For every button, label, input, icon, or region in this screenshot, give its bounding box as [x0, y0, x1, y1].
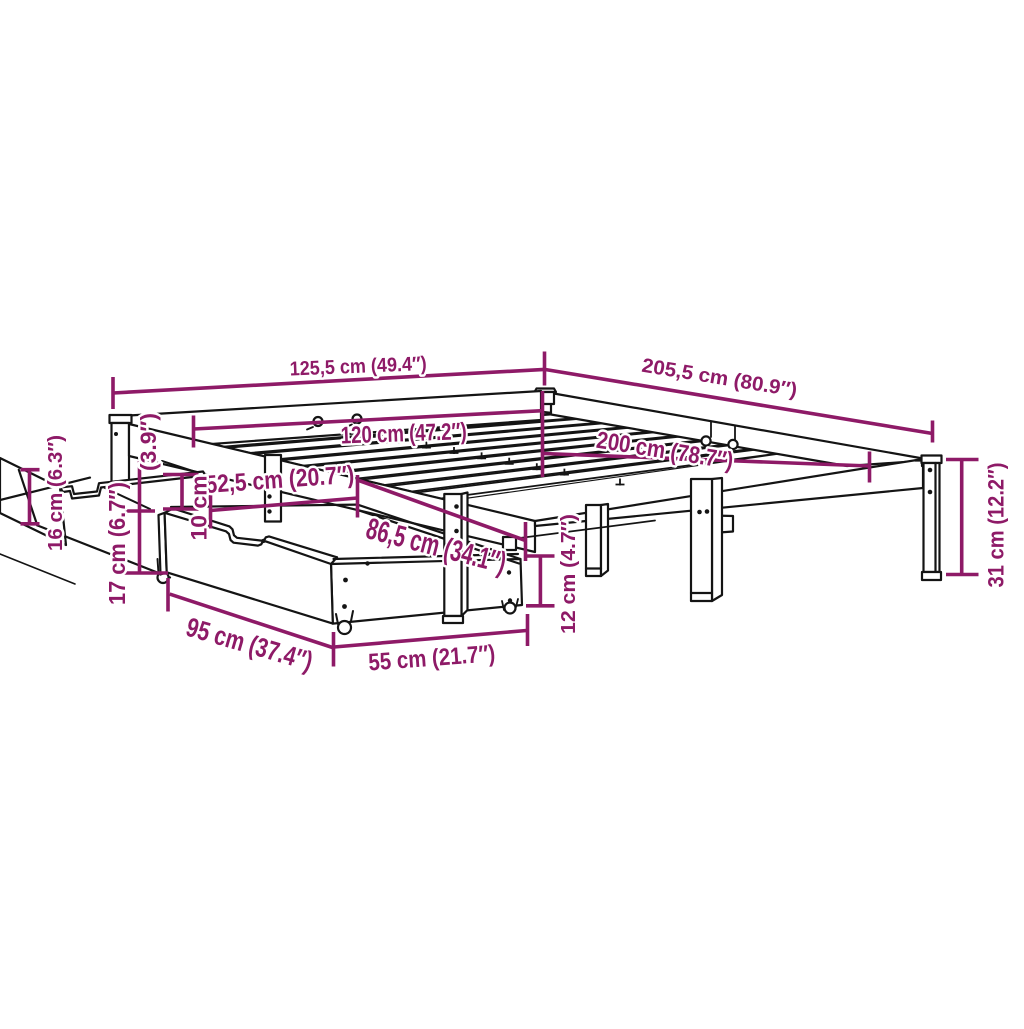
svg-text:16 cm (6.3″): 16 cm (6.3″) [45, 435, 67, 551]
svg-text:205,5 cm (80.9″): 205,5 cm (80.9″) [640, 355, 798, 402]
svg-text:120 cm (47.2″): 120 cm (47.2″) [340, 418, 467, 449]
svg-text:55 cm (21.7″): 55 cm (21.7″) [367, 640, 496, 676]
svg-text:17 cm (6.7″): 17 cm (6.7″) [104, 482, 130, 605]
svg-text:10 cm: 10 cm [187, 476, 212, 541]
svg-text:(3.9″): (3.9″) [136, 413, 161, 471]
svg-text:12 cm (4.7″): 12 cm (4.7″) [558, 514, 580, 634]
svg-text:31 cm (12.2″): 31 cm (12.2″) [984, 463, 1009, 588]
